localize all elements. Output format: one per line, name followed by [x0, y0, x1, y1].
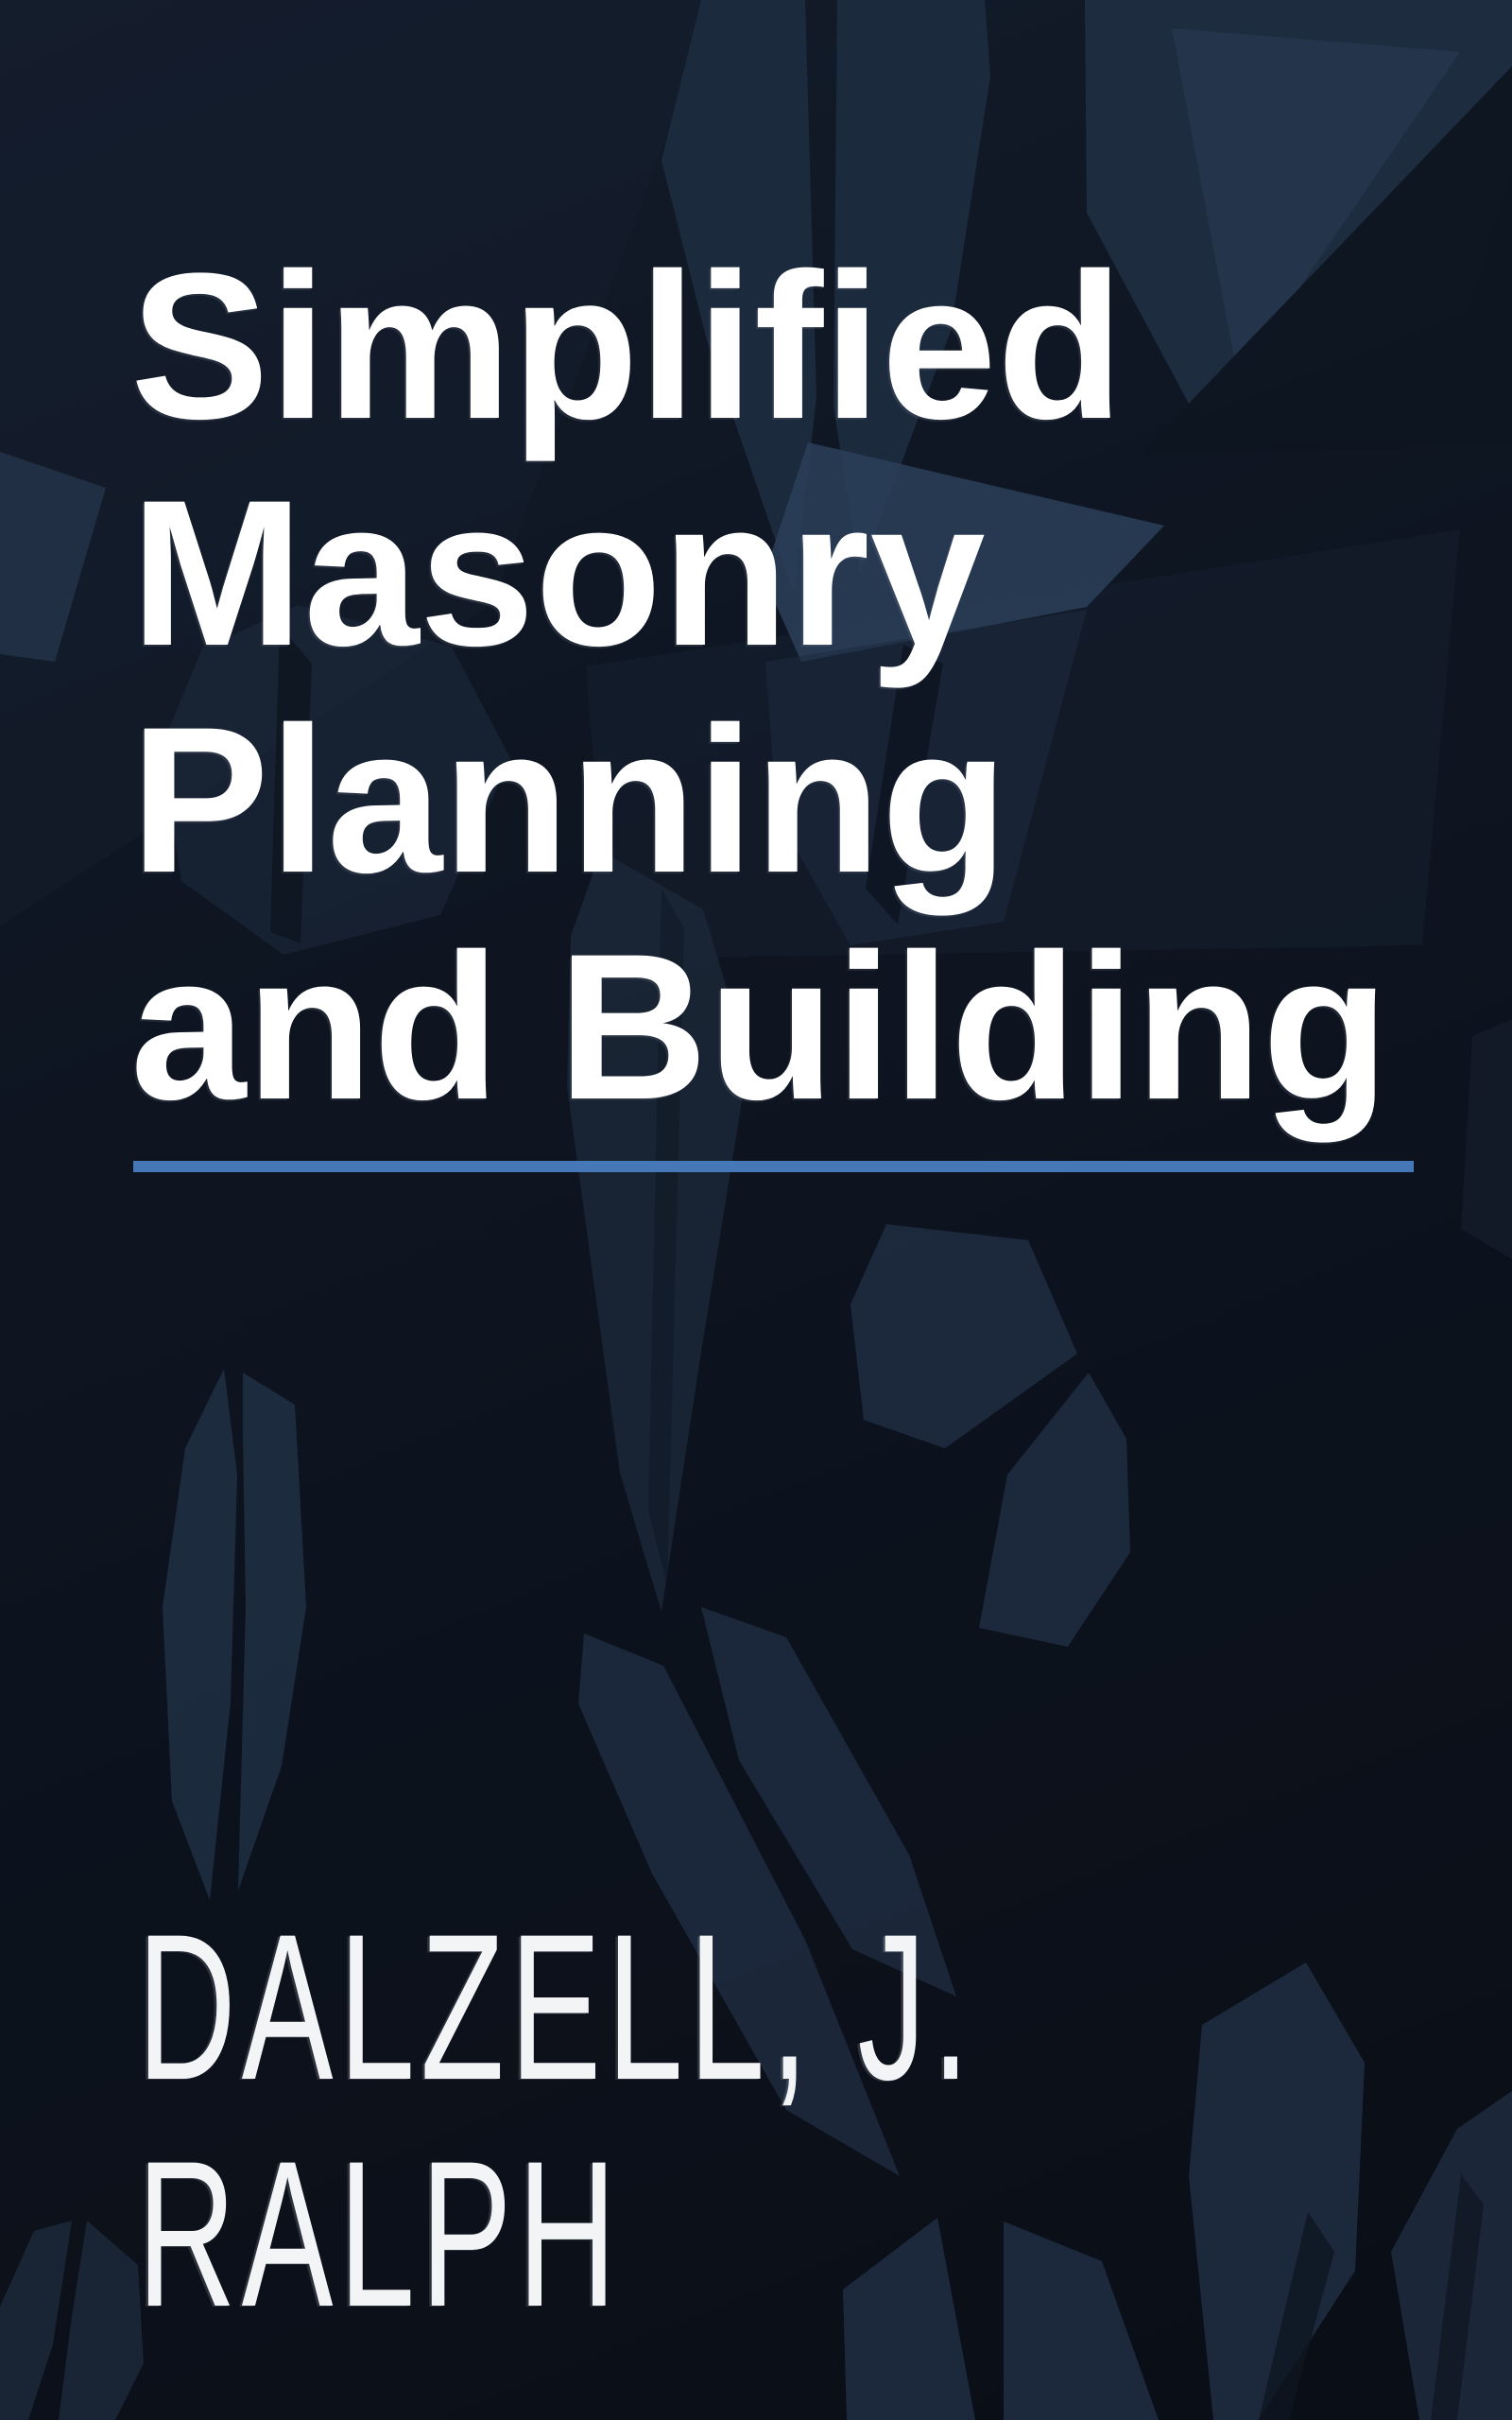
- title-line-4: and Building: [130, 913, 1389, 1140]
- book-cover: Simplified Masonry Planning and Building…: [0, 0, 1512, 2420]
- leaf-corner-left-lobe: [0, 2221, 72, 2420]
- title-line-2: Masonry: [130, 459, 1389, 686]
- author-line-2: RALPH: [137, 2120, 975, 2347]
- leaf-bottom-right-lobe: [1004, 2221, 1159, 2420]
- leaf-mid-right-upper-lobe: [850, 1224, 1077, 1448]
- leaf-corner-right-lobe: [59, 2221, 144, 2420]
- title-underline-rule: [133, 1161, 1414, 1172]
- title-line-1: Simplified: [130, 233, 1389, 459]
- book-author: DALZELL, J. RALPH: [137, 1893, 975, 2347]
- author-line-1: DALZELL, J.: [137, 1893, 975, 2120]
- book-title: Simplified Masonry Planning and Building: [130, 233, 1389, 1140]
- title-line-3: Planning: [130, 686, 1389, 913]
- background-facet: [1461, 1019, 1512, 1259]
- leaf-mid-right-lower-lobe: [979, 1373, 1130, 1647]
- leaf-mid-left-left-lobe: [163, 1369, 237, 1900]
- leaf-mid-left-right-lobe: [238, 1373, 306, 1891]
